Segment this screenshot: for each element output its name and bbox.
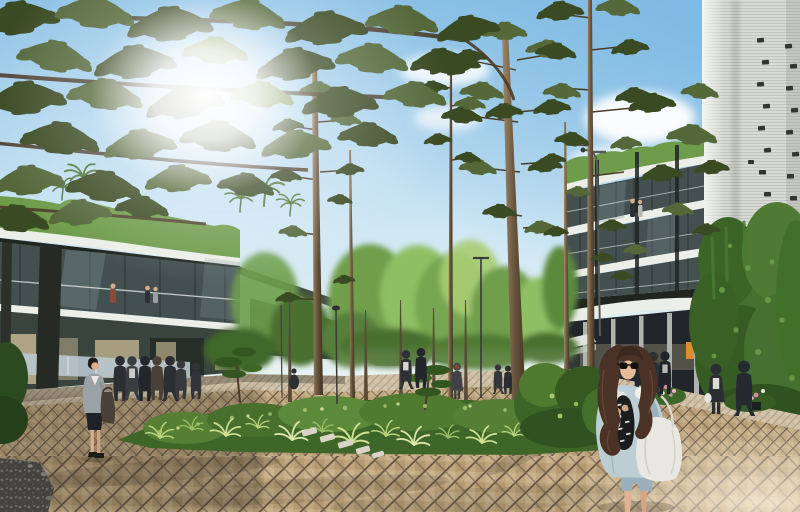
architectural-rendering	[0, 0, 800, 512]
scene-root	[0, 0, 800, 512]
